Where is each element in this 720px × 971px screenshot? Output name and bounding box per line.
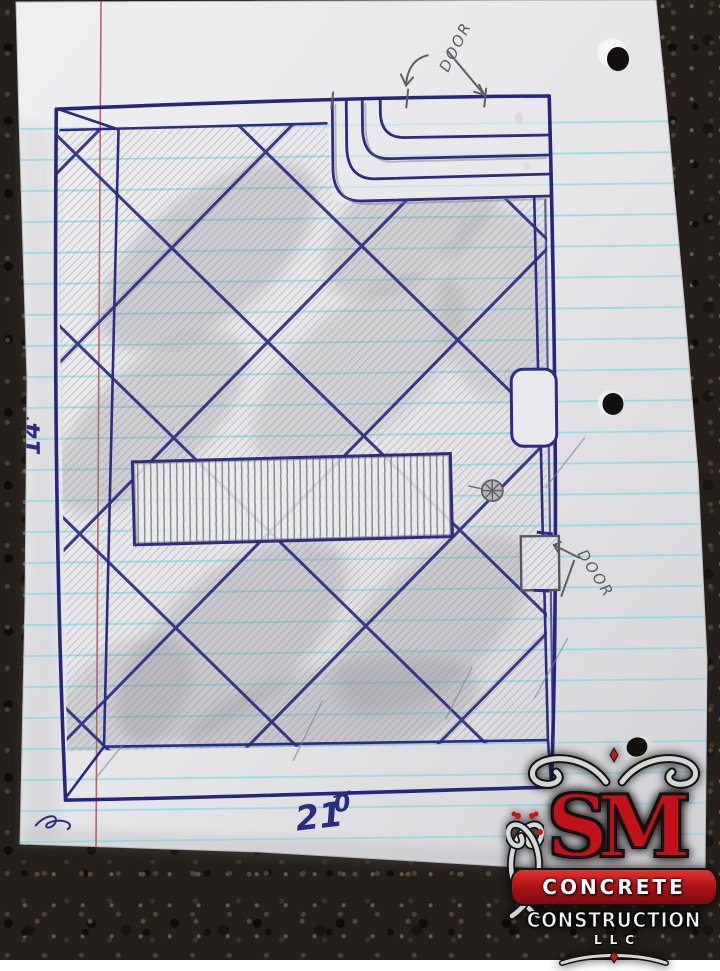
logo-banner-text: CONCRETE [542, 875, 685, 899]
dimension-left: 14' [18, 415, 46, 456]
hole-punch [598, 390, 624, 416]
logo-llc-text: LLC [506, 933, 720, 947]
company-logo: SM CONCRETE CONSTRUCTION LLC [506, 746, 720, 960]
logo-bottom-flourish-icon [554, 949, 674, 971]
corner-steps [329, 96, 550, 204]
logo-banner: CONCRETE [510, 868, 718, 906]
door-opening-right [521, 532, 560, 591]
logo-right-flourish-icon [506, 804, 552, 924]
step-rectangle [132, 454, 452, 545]
wall-bumpout [511, 369, 557, 446]
dimension-bottom-sup: 0 [332, 789, 352, 819]
logo-construction-text: CONSTRUCTION [515, 908, 714, 932]
